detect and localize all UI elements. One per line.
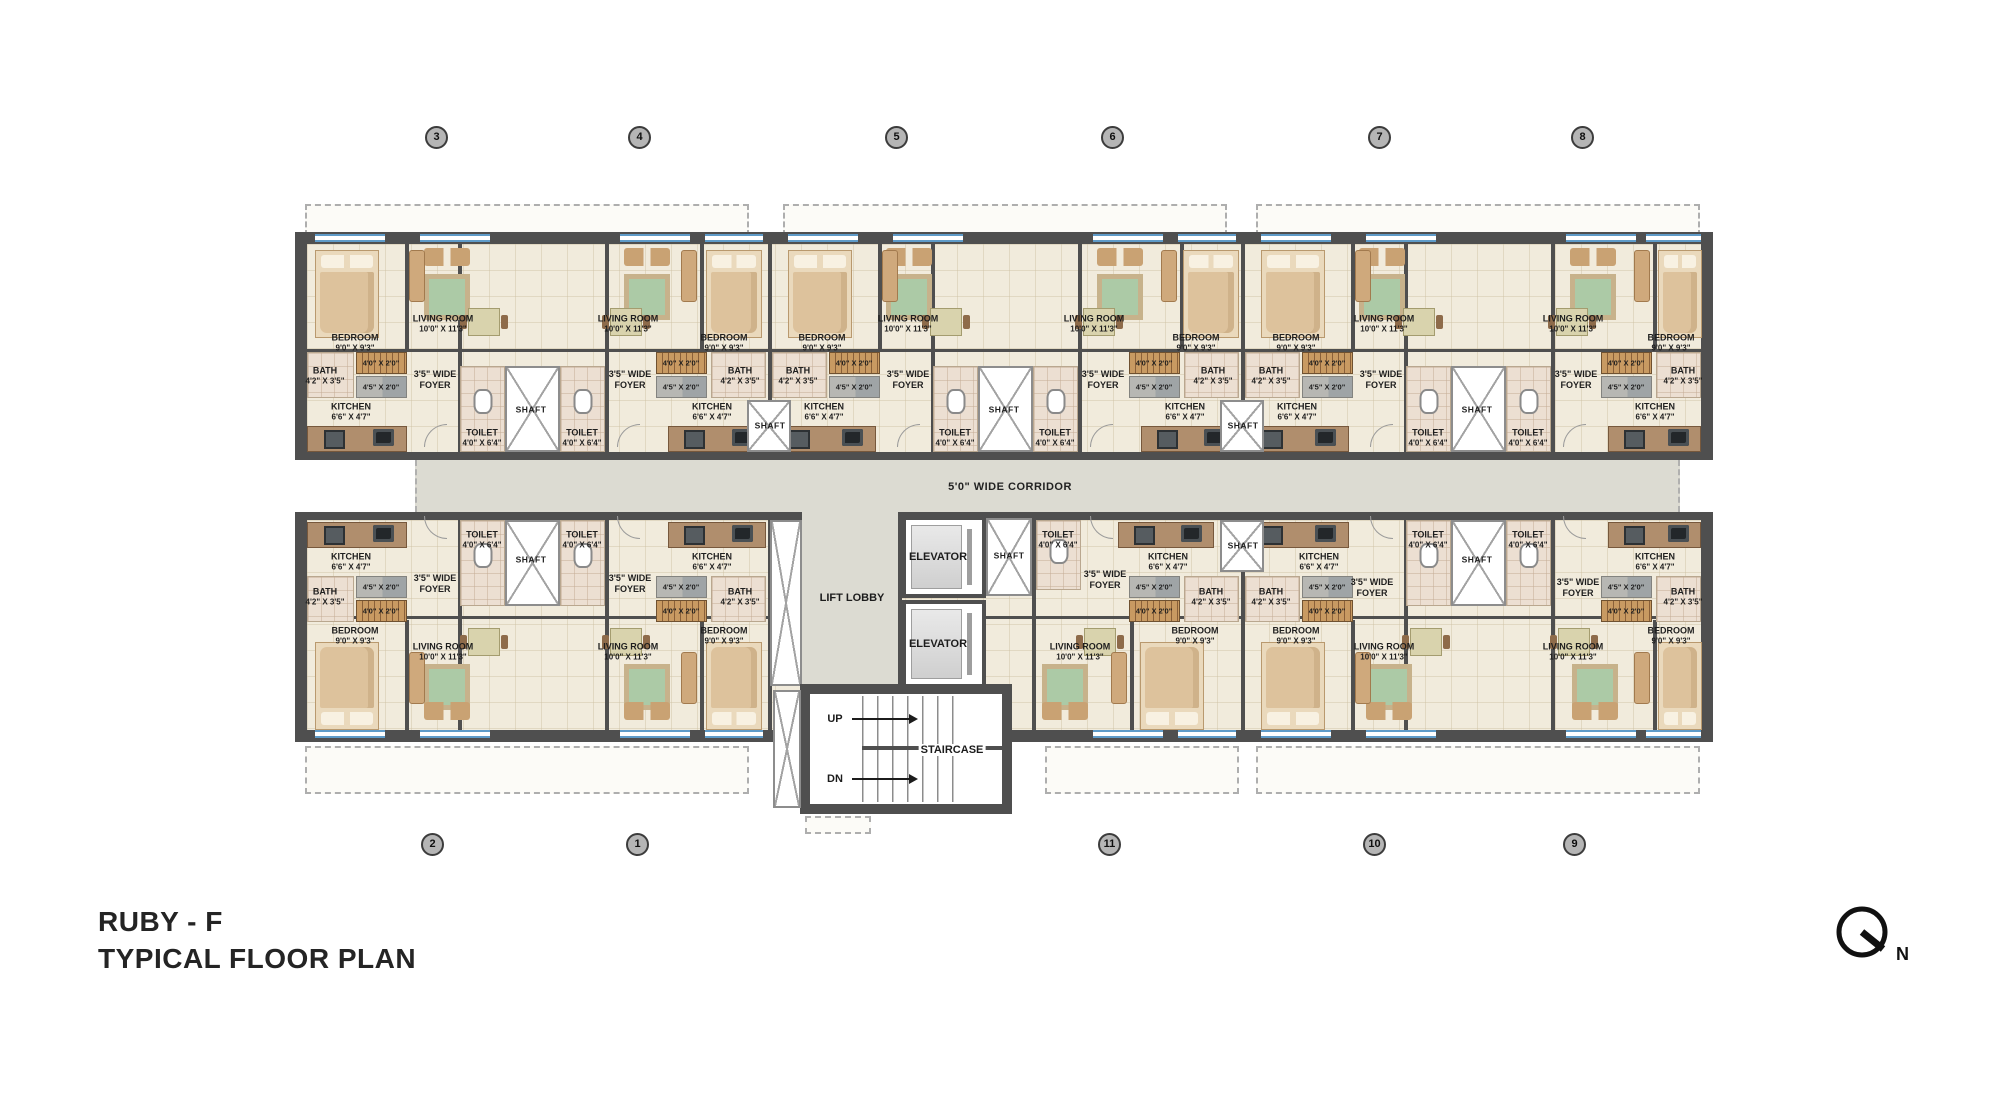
wall <box>295 616 1713 619</box>
foyer-label: 3'5" WIDEFOYER <box>414 369 456 392</box>
bedroom-label: BEDROOM9'0" X 9'3" <box>332 625 379 646</box>
foyer-label: 3'5" WIDEFOYER <box>1557 577 1599 600</box>
foyer-label: 3'5" WIDEFOYER <box>887 369 929 392</box>
grid-marker-top: 6 <box>1101 126 1124 149</box>
bedroom-label: BEDROOM9'0" X 9'3" <box>332 332 379 353</box>
wardrobe-dim-label: 4'0" X 2'0" <box>363 606 400 615</box>
living-room-label: LIVING ROOM10'0" X 11'3" <box>598 641 659 662</box>
bath-label: BATH4'2" X 3'5" <box>1252 586 1291 607</box>
wardrobe-dim-label: 4'0" X 2'0" <box>1309 358 1346 367</box>
shaft-label: SHAFT <box>1228 421 1259 432</box>
kitchen-label: KITCHEN6'6" X 4'7" <box>804 401 844 422</box>
window <box>705 730 763 738</box>
armchairs <box>424 702 470 720</box>
north-arrow-icon <box>1828 898 1928 976</box>
toilet-label: TOILET4'0" X 6'4" <box>463 427 502 448</box>
foyer-label: 3'5" WIDEFOYER <box>609 573 651 596</box>
wall <box>1551 520 1555 738</box>
shaft-label: SHAFT <box>1462 555 1493 566</box>
sofa <box>1111 652 1127 704</box>
window <box>315 234 385 242</box>
foyer-label: 3'5" WIDEFOYER <box>1084 569 1126 592</box>
living-room-label: LIVING ROOM10'0" X 11'3" <box>1050 641 1111 662</box>
bed <box>1658 250 1702 338</box>
wardrobe-dim-label: 4'0" X 2'0" <box>663 606 700 615</box>
title-line2: TYPICAL FLOOR PLAN <box>98 940 416 977</box>
living-room-label: LIVING ROOM10'0" X 11'3" <box>413 641 474 662</box>
toilet-label: TOILET4'0" X 6'4" <box>1509 529 1548 550</box>
grid-marker-top: 4 <box>628 126 651 149</box>
platform-dim-label: 4'5" X 2'0" <box>1136 582 1173 591</box>
shaft-box <box>773 690 801 808</box>
down-arrow-icon <box>852 778 910 780</box>
window <box>1261 234 1331 242</box>
bath-label: BATH4'2" X 3'5" <box>721 365 760 386</box>
foyer-label: 3'5" WIDEFOYER <box>609 369 651 392</box>
living-room-label: LIVING ROOM10'0" X 11'3" <box>413 313 474 334</box>
bed <box>706 642 762 730</box>
living-room-label: LIVING ROOM10'0" X 11'3" <box>878 313 939 334</box>
grid-marker-bottom: 1 <box>626 833 649 856</box>
wardrobe-dim-label: 4'0" X 2'0" <box>1608 358 1645 367</box>
sofa <box>409 250 425 302</box>
kitchen-counter <box>307 522 407 548</box>
bed <box>315 250 379 338</box>
corridor-label: 5'0" WIDE CORRIDOR <box>948 481 1072 493</box>
kitchen-label: KITCHEN6'6" X 4'7" <box>1277 401 1317 422</box>
armchairs <box>1572 702 1618 720</box>
platform-dim-label: 4'5" X 2'0" <box>1136 382 1173 391</box>
platform-dim-label: 4'5" X 2'0" <box>1608 382 1645 391</box>
bath-label: BATH4'2" X 3'5" <box>1664 365 1703 386</box>
bedroom-label: BEDROOM9'0" X 9'3" <box>701 625 748 646</box>
sofa <box>882 250 898 302</box>
bath-label: BATH4'2" X 3'5" <box>779 365 818 386</box>
sofa <box>1634 250 1650 302</box>
toilet-label: TOILET4'0" X 6'4" <box>936 427 975 448</box>
window <box>705 234 763 242</box>
shaft-label: SHAFT <box>989 405 1020 416</box>
window <box>420 234 490 242</box>
wall <box>1130 620 1134 738</box>
kitchen-counter <box>1118 522 1214 548</box>
bath-label: BATH4'2" X 3'5" <box>1192 586 1231 607</box>
wall <box>605 232 609 452</box>
toilet-label: TOILET4'0" X 6'4" <box>1409 529 1448 550</box>
platform-dim-label: 4'5" X 2'0" <box>1309 382 1346 391</box>
bedroom-label: BEDROOM9'0" X 9'3" <box>1648 625 1695 646</box>
bedroom-label: BEDROOM9'0" X 9'3" <box>1273 625 1320 646</box>
wall <box>605 520 609 738</box>
kitchen-label: KITCHEN6'6" X 4'7" <box>331 551 371 572</box>
balcony <box>305 746 749 794</box>
shaft-label: SHAFT <box>1462 405 1493 416</box>
toilet-label: TOILET4'0" X 6'4" <box>1409 427 1448 448</box>
armchairs <box>1042 702 1088 720</box>
grid-marker-bottom: 11 <box>1098 833 1121 856</box>
kitchen-label: KITCHEN6'6" X 4'7" <box>1299 551 1339 572</box>
bedroom-label: BEDROOM9'0" X 9'3" <box>1648 332 1695 353</box>
elevator-label: ELEVATOR <box>909 551 967 563</box>
window <box>1646 730 1701 738</box>
up-arrow-icon <box>852 718 910 720</box>
window <box>620 730 690 738</box>
wall <box>1551 232 1555 452</box>
grid-marker-top: 3 <box>425 126 448 149</box>
window <box>315 730 385 738</box>
bath-label: BATH4'2" X 3'5" <box>1194 365 1233 386</box>
wardrobe-dim-label: 4'0" X 2'0" <box>363 358 400 367</box>
toilet-label: TOILET4'0" X 6'4" <box>563 529 602 550</box>
title-line1: RUBY - F <box>98 903 416 940</box>
shaft-label: SHAFT <box>755 421 786 432</box>
living-room-label: LIVING ROOM10'0" X 11'3" <box>1543 641 1604 662</box>
bedroom-label: BEDROOM9'0" X 9'3" <box>701 332 748 353</box>
wall <box>295 349 1713 352</box>
grid-marker-bottom: 9 <box>1563 833 1586 856</box>
bed <box>1658 642 1702 730</box>
north-label: N <box>1896 944 1909 965</box>
wardrobe-dim-label: 4'0" X 2'0" <box>836 358 873 367</box>
bath-label: BATH4'2" X 3'5" <box>1664 586 1703 607</box>
shaft-label: SHAFT <box>994 551 1025 562</box>
armchairs <box>624 702 670 720</box>
bed <box>706 250 762 338</box>
sofa <box>1355 250 1371 302</box>
sofa <box>681 652 697 704</box>
kitchen-label: KITCHEN6'6" X 4'7" <box>1165 401 1205 422</box>
wardrobe-dim-label: 4'0" X 2'0" <box>663 358 700 367</box>
kitchen-counter <box>307 426 407 452</box>
sofa <box>1161 250 1177 302</box>
elevator-label: ELEVATOR <box>909 638 967 650</box>
platform-dim-label: 4'5" X 2'0" <box>663 582 700 591</box>
shaft-box <box>770 520 802 686</box>
kitchen-label: KITCHEN6'6" X 4'7" <box>692 401 732 422</box>
platform-dim-label: 4'5" X 2'0" <box>663 382 700 391</box>
kitchen-label: KITCHEN6'6" X 4'7" <box>331 401 371 422</box>
window <box>788 234 858 242</box>
armchairs <box>1097 248 1143 266</box>
bedroom-label: BEDROOM9'0" X 9'3" <box>1273 332 1320 353</box>
living-room-label: LIVING ROOM10'0" X 11'3" <box>1354 313 1415 334</box>
kitchen-label: KITCHEN6'6" X 4'7" <box>1148 551 1188 572</box>
bed <box>315 642 379 730</box>
toilet-label: TOILET4'0" X 6'4" <box>1039 529 1078 550</box>
armchairs <box>1366 702 1412 720</box>
platform-dim-label: 4'5" X 2'0" <box>363 582 400 591</box>
window <box>620 234 690 242</box>
shaft-label: SHAFT <box>516 405 547 416</box>
armchairs <box>1570 248 1616 266</box>
kitchen-counter <box>1608 522 1701 548</box>
grid-marker-top: 5 <box>885 126 908 149</box>
floor-plan-canvas: BEDROOM9'0" X 9'3" BEDROOM9'0" X 9'3" BE… <box>0 0 2000 1111</box>
bath-label: BATH4'2" X 3'5" <box>721 586 760 607</box>
kitchen-label: KITCHEN6'6" X 4'7" <box>1635 401 1675 422</box>
grid-marker-bottom: 10 <box>1363 833 1386 856</box>
living-room-label: LIVING ROOM10'0" X 11'3" <box>1354 641 1415 662</box>
wardrobe-dim-label: 4'0" X 2'0" <box>1309 606 1346 615</box>
shaft-label: SHAFT <box>1228 541 1259 552</box>
bedroom-label: BEDROOM9'0" X 9'3" <box>1172 625 1219 646</box>
foyer-label: 3'5" WIDEFOYER <box>1555 369 1597 392</box>
sofa <box>681 250 697 302</box>
wardrobe-dim-label: 4'0" X 2'0" <box>1136 358 1173 367</box>
living-room-label: LIVING ROOM10'0" X 11'3" <box>598 313 659 334</box>
wall <box>1078 232 1082 452</box>
grid-marker-bottom: 2 <box>421 833 444 856</box>
foyer-label: 3'5" WIDEFOYER <box>1082 369 1124 392</box>
bed <box>1261 250 1325 338</box>
balcony <box>805 816 871 834</box>
shaft-label: SHAFT <box>516 555 547 566</box>
armchairs <box>424 248 470 266</box>
bed <box>1140 642 1204 730</box>
foyer-label: 3'5" WIDEFOYER <box>414 573 456 596</box>
staircase-label: STAIRCASE <box>919 744 986 756</box>
toilet-label: TOILET4'0" X 6'4" <box>1036 427 1075 448</box>
dn-label: DN <box>825 773 845 785</box>
window <box>1178 730 1236 738</box>
armchairs <box>624 248 670 266</box>
window <box>1093 234 1163 242</box>
window <box>1566 730 1636 738</box>
window <box>1366 730 1436 738</box>
grid-marker-top: 7 <box>1368 126 1391 149</box>
bed <box>1261 642 1325 730</box>
bed <box>788 250 852 338</box>
bath-label: BATH4'2" X 3'5" <box>306 586 345 607</box>
window <box>420 730 490 738</box>
north-indicator: N <box>1828 898 1928 981</box>
platform-dim-label: 4'5" X 2'0" <box>363 382 400 391</box>
living-room-label: LIVING ROOM10'0" X 11'3" <box>1064 313 1125 334</box>
window <box>1178 234 1236 242</box>
drawing-title: RUBY - F TYPICAL FLOOR PLAN <box>98 903 416 977</box>
toilet-label: TOILET4'0" X 6'4" <box>563 427 602 448</box>
kitchen-counter <box>668 522 766 548</box>
toilet-label: TOILET4'0" X 6'4" <box>1509 427 1548 448</box>
grid-marker-top: 8 <box>1571 126 1594 149</box>
dining-table <box>1410 628 1442 656</box>
lift-lobby-label: LIFT LOBBY <box>820 592 885 604</box>
platform-dim-label: 4'5" X 2'0" <box>1608 582 1645 591</box>
platform-dim-label: 4'5" X 2'0" <box>836 382 873 391</box>
window <box>1093 730 1163 738</box>
balcony <box>1256 746 1700 794</box>
foyer-label: 3'5" WIDEFOYER <box>1351 577 1393 600</box>
kitchen-counter <box>1608 426 1701 452</box>
sofa <box>1634 652 1650 704</box>
platform-dim-label: 4'5" X 2'0" <box>1309 582 1346 591</box>
bedroom-label: BEDROOM9'0" X 9'3" <box>1173 332 1220 353</box>
window <box>1646 234 1701 242</box>
window <box>1366 234 1436 242</box>
bath-label: BATH4'2" X 3'5" <box>1252 365 1291 386</box>
living-room-label: LIVING ROOM10'0" X 11'3" <box>1543 313 1604 334</box>
wardrobe-dim-label: 4'0" X 2'0" <box>1608 606 1645 615</box>
wardrobe-dim-label: 4'0" X 2'0" <box>1136 606 1173 615</box>
up-label: UP <box>825 713 844 725</box>
window <box>1261 730 1331 738</box>
kitchen-label: KITCHEN6'6" X 4'7" <box>1635 551 1675 572</box>
window <box>893 234 963 242</box>
foyer-label: 3'5" WIDEFOYER <box>1360 369 1402 392</box>
toilet-label: TOILET4'0" X 6'4" <box>463 529 502 550</box>
bed <box>1183 250 1239 338</box>
bath-label: BATH4'2" X 3'5" <box>306 365 345 386</box>
balcony <box>1045 746 1239 794</box>
bedroom-label: BEDROOM9'0" X 9'3" <box>799 332 846 353</box>
kitchen-label: KITCHEN6'6" X 4'7" <box>692 551 732 572</box>
window <box>1566 234 1636 242</box>
